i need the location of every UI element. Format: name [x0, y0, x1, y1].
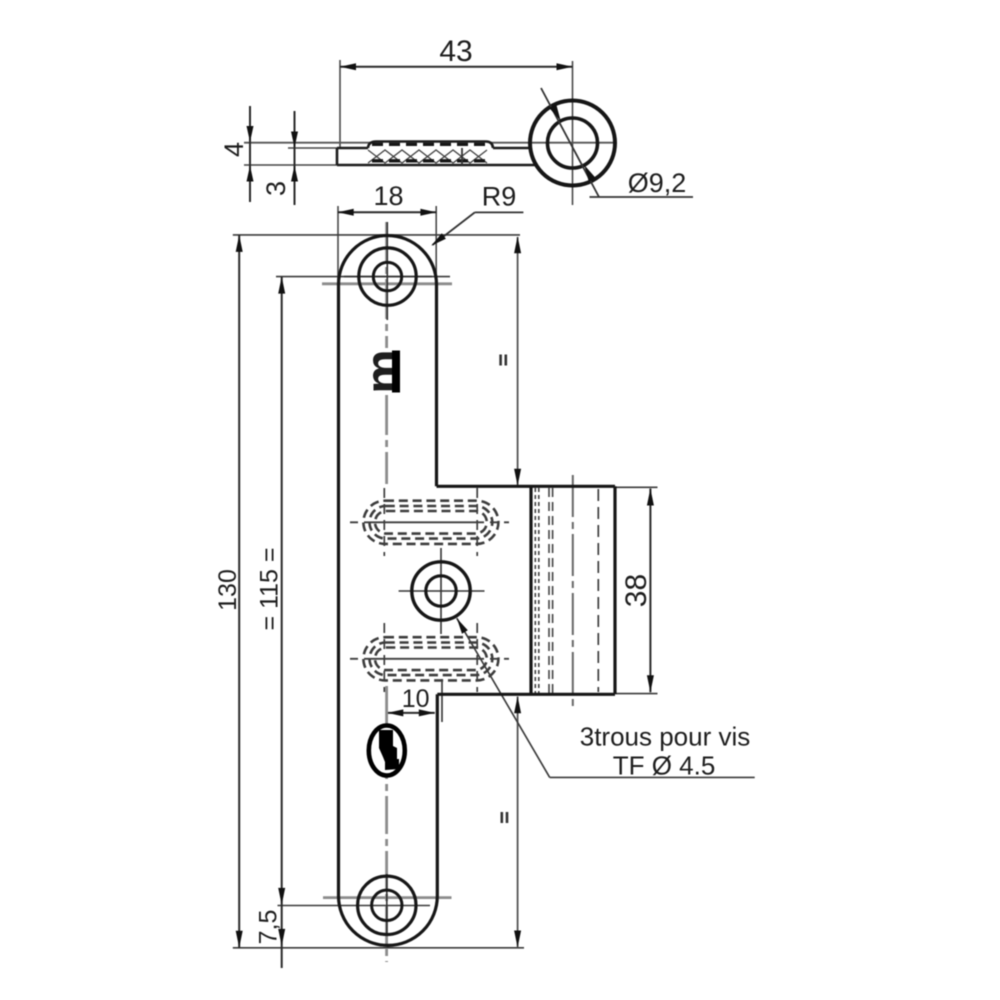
svg-text:10: 10	[402, 685, 430, 713]
svg-text:130: 130	[214, 569, 242, 611]
svg-text:3trous pour vis: 3trous pour vis	[580, 722, 751, 752]
svg-text:= 115 =: = 115 =	[256, 548, 284, 631]
svg-text:TF Ø 4.5: TF Ø 4.5	[613, 751, 716, 781]
svg-text:7,5: 7,5	[255, 910, 283, 945]
svg-text:4: 4	[219, 142, 249, 157]
svg-text:38: 38	[620, 574, 653, 607]
svg-text:18: 18	[373, 181, 403, 211]
svg-text:R9: R9	[482, 182, 517, 212]
svg-text:3: 3	[261, 181, 291, 196]
svg-text:m: m	[355, 349, 411, 393]
svg-text:Ø9,2: Ø9,2	[628, 168, 687, 198]
svg-text:43: 43	[439, 35, 472, 68]
